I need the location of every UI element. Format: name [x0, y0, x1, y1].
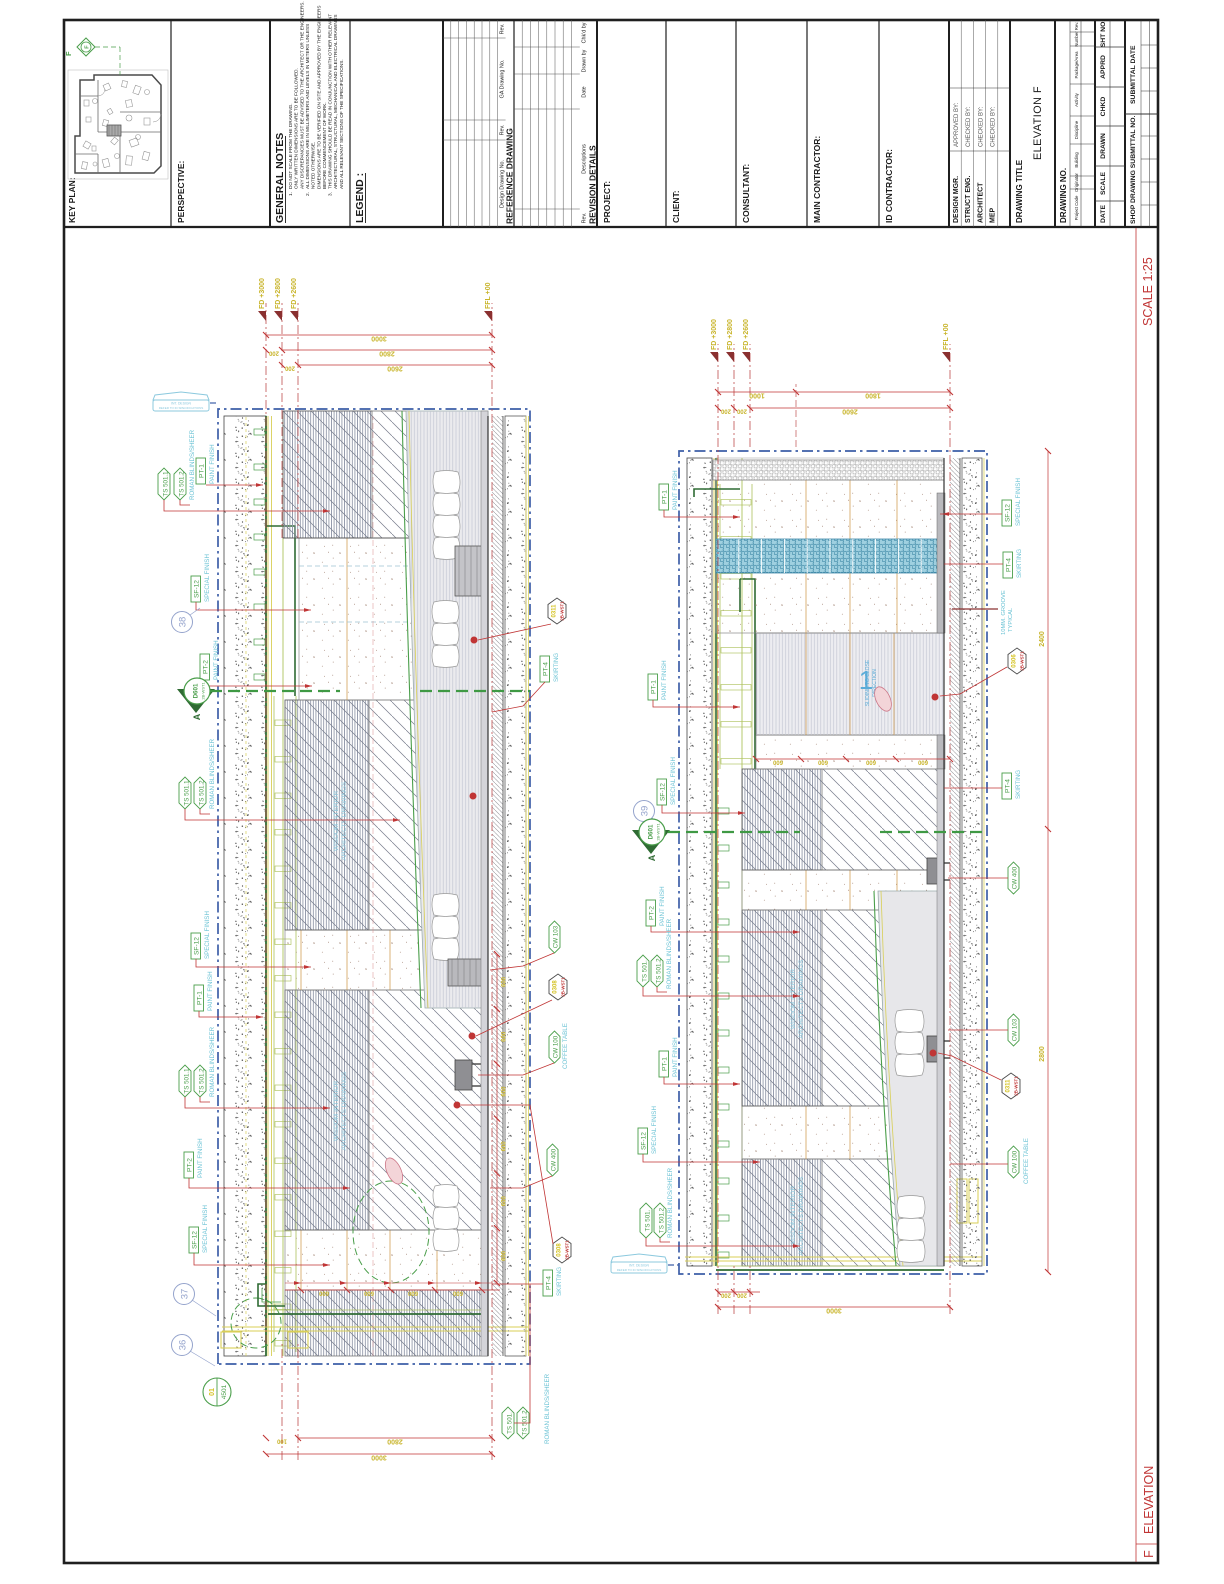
- svg-text:KEY PLAN:: KEY PLAN:: [67, 177, 77, 223]
- svg-text:SPECIAL FINISH: SPECIAL FINISH: [204, 911, 211, 959]
- svg-text:SHOP DRAWING SUBMITTAL NO.: SHOP DRAWING SUBMITTAL NO.: [1130, 116, 1137, 224]
- svg-text:2B-WST1: 2B-WST1: [560, 601, 565, 621]
- svg-text:0306: 0306: [1012, 654, 1018, 668]
- svg-text:PT-2: PT-2: [649, 906, 656, 920]
- svg-text:36: 36: [177, 1340, 188, 1351]
- svg-text:PT-1: PT-1: [197, 991, 204, 1005]
- svg-text:1800: 1800: [865, 392, 881, 399]
- svg-text:F: F: [64, 51, 73, 56]
- svg-text:PT-1: PT-1: [651, 680, 658, 694]
- svg-text:TS 501.2: TS 501.2: [198, 780, 205, 806]
- svg-text:SKIRTING: SKIRTING: [553, 653, 560, 682]
- svg-text:SF-12: SF-12: [660, 783, 667, 801]
- svg-text:PAINT FINISH: PAINT FINISH: [661, 660, 668, 700]
- svg-text:ROMAN BLINDS/SHEER: ROMAN BLINDS/SHEER: [209, 738, 216, 809]
- svg-text:3000: 3000: [371, 1454, 387, 1461]
- svg-text:600: 600: [502, 976, 508, 987]
- svg-text:SKIRTING: SKIRTING: [1015, 770, 1022, 799]
- svg-text:SUBMITTAL DATE: SUBMITTAL DATE: [1130, 45, 1137, 104]
- svg-text:Package/Area: Package/Area: [1074, 51, 1079, 79]
- svg-text:MAIN CONTRACTOR:: MAIN CONTRACTOR:: [812, 136, 822, 223]
- svg-text:600: 600: [363, 1290, 374, 1296]
- svg-text:1.: 1.: [288, 192, 293, 196]
- svg-text:200: 200: [736, 408, 747, 414]
- svg-text:THIS DRAWING SHOULD BE READ IN: THIS DRAWING SHOULD BE READ IN CONJUNCTI…: [328, 14, 333, 189]
- svg-text:Project Code: Project Code: [1074, 195, 1079, 220]
- svg-text:ALL DIMENSIONS ARE IN MILLIMET: ALL DIMENSIONS ARE IN MILLIMETERS AND LE…: [305, 24, 310, 189]
- svg-text:39: 39: [639, 806, 650, 817]
- svg-text:F: F: [1142, 1550, 1156, 1558]
- svg-text:600: 600: [318, 1290, 329, 1296]
- svg-text:PAINT FINISH: PAINT FINISH: [197, 1138, 204, 1178]
- svg-text:WISDOM INTERIOR: WISDOM INTERIOR: [333, 1081, 340, 1142]
- svg-text:3.: 3.: [328, 192, 333, 196]
- svg-text:D601: D601: [648, 824, 655, 839]
- svg-text:SKIRTING: SKIRTING: [1016, 549, 1023, 578]
- svg-text:1000: 1000: [749, 392, 765, 399]
- svg-text:0311: 0311: [552, 604, 558, 618]
- svg-text:FD +2800: FD +2800: [727, 319, 734, 350]
- svg-text:ARCHITECT: ARCHITECT: [977, 182, 984, 223]
- svg-text:INT. DESIGN: INT. DESIGN: [629, 1264, 650, 1268]
- svg-text:TS 501.: TS 501.: [644, 1209, 651, 1231]
- svg-text:TYPICAL: TYPICAL: [1008, 607, 1014, 632]
- svg-text:2B-WST1: 2B-WST1: [1014, 1076, 1019, 1096]
- svg-text:SF-12: SF-12: [1005, 504, 1012, 522]
- svg-text:PT-4: PT-4: [546, 1276, 553, 1290]
- svg-text:TS 501.: TS 501.: [506, 1412, 513, 1434]
- svg-text:PAINT FINISH: PAINT FINISH: [213, 640, 220, 680]
- svg-text:PERSPECTIVE:: PERSPECTIVE:: [176, 160, 186, 223]
- svg-text:Originator: Originator: [1074, 173, 1079, 192]
- svg-text:SHT NO.: SHT NO.: [1100, 20, 1107, 48]
- svg-text:INT. DESIGN: INT. DESIGN: [171, 402, 192, 406]
- svg-text:Number: Number: [1074, 31, 1079, 47]
- svg-text:4501: 4501: [221, 1384, 228, 1399]
- svg-text:PT-1: PT-1: [662, 490, 669, 504]
- svg-text:WISDOM INTERIOR: WISDOM INTERIOR: [333, 791, 340, 852]
- svg-text:TS 501.2: TS 501.2: [655, 958, 662, 984]
- svg-text:APPROVED BY:: APPROVED BY:: [954, 102, 960, 147]
- svg-text:DESIGN MGR.: DESIGN MGR.: [953, 176, 960, 223]
- svg-text:PROJECT:: PROJECT:: [602, 181, 612, 223]
- svg-text:SLIDING TO CLOSE: SLIDING TO CLOSE: [865, 659, 871, 706]
- svg-text:PAINT FINISH: PAINT FINISH: [672, 470, 679, 510]
- svg-text:CHECKED BY:: CHECKED BY:: [966, 106, 972, 147]
- svg-text:38: 38: [177, 617, 188, 628]
- svg-text:PT-1: PT-1: [662, 1057, 669, 1071]
- svg-text:ID CONTRACTOR:: ID CONTRACTOR:: [884, 149, 894, 223]
- svg-text:DRAWING NO.: DRAWING NO.: [1059, 168, 1068, 223]
- svg-text:DRAWN: DRAWN: [1100, 133, 1107, 159]
- svg-text:NOTED OTHERWISE.: NOTED OTHERWISE.: [311, 142, 316, 189]
- svg-text:PAINT FINISH: PAINT FINISH: [672, 1037, 679, 1077]
- svg-text:600: 600: [502, 1031, 508, 1042]
- svg-text:D601: D601: [193, 683, 200, 698]
- svg-text:TS 501.1: TS 501.1: [162, 471, 169, 497]
- svg-text:GENERAL NOTES: GENERAL NOTES: [274, 133, 286, 223]
- svg-text:PT-4: PT-4: [543, 662, 550, 676]
- svg-text:FD +3000: FD +3000: [711, 319, 718, 350]
- svg-text:PAINT FINISH: PAINT FINISH: [659, 886, 666, 926]
- svg-text:FFL +00: FFL +00: [943, 323, 950, 350]
- svg-text:200: 200: [720, 1292, 731, 1298]
- svg-text:Discipline: Discipline: [1074, 120, 1079, 139]
- svg-text:TS 501.2: TS 501.2: [658, 1207, 665, 1233]
- svg-text:CW 103: CW 103: [552, 925, 559, 948]
- svg-text:REFERENCE DRAWING: REFERENCE DRAWING: [505, 128, 515, 224]
- svg-text:3000: 3000: [371, 335, 387, 342]
- svg-text:WISDOM INTERIOR: WISDOM INTERIOR: [790, 1186, 797, 1247]
- svg-text:ROMAN BLINDS/SHEER: ROMAN BLINDS/SHEER: [189, 429, 196, 500]
- svg-text:600: 600: [502, 1196, 508, 1207]
- svg-text:0308: 0308: [557, 1243, 563, 1257]
- svg-text:SPECIAL FINISH: SPECIAL FINISH: [1015, 478, 1022, 526]
- svg-text:CW 400: CW 400: [550, 1148, 557, 1171]
- svg-text:FD +3000: FD +3000: [259, 278, 266, 309]
- svg-text:PT-4: PT-4: [1006, 558, 1013, 572]
- svg-text:SKIRTING: SKIRTING: [556, 1267, 563, 1296]
- svg-text:ARCHITECTS DRAWINGS: ARCHITECTS DRAWINGS: [341, 1071, 348, 1151]
- svg-text:SF-12: SF-12: [194, 937, 201, 955]
- svg-text:Rev.: Rev.: [500, 24, 506, 35]
- svg-text:600: 600: [407, 1290, 418, 1296]
- svg-text:WISDOM INTERIOR: WISDOM INTERIOR: [790, 969, 797, 1030]
- svg-text:2600: 2600: [387, 365, 403, 372]
- svg-text:200: 200: [720, 408, 731, 414]
- svg-text:Activity: Activity: [1074, 92, 1079, 106]
- svg-text:FD +2600: FD +2600: [743, 319, 750, 350]
- svg-text:SF-12: SF-12: [641, 1132, 648, 1150]
- svg-text:MEP: MEP: [990, 208, 997, 224]
- svg-text:Rev.: Rev.: [1074, 22, 1079, 31]
- svg-text:SPECIAL FINISH: SPECIAL FINISH: [204, 554, 211, 602]
- svg-text:TS 501.2: TS 501.2: [198, 1068, 205, 1094]
- svg-text:100: 100: [276, 1438, 287, 1444]
- svg-text:01: 01: [209, 1388, 216, 1396]
- svg-text:PAINT FINISH: PAINT FINISH: [207, 971, 214, 1011]
- svg-text:37: 37: [179, 1289, 190, 1300]
- svg-text:GA Drawing No.: GA Drawing No.: [500, 60, 506, 99]
- svg-text:TS 501.1: TS 501.1: [183, 1068, 190, 1094]
- svg-text:2800: 2800: [1039, 1046, 1046, 1062]
- svg-text:TS 501.2: TS 501.2: [178, 471, 185, 497]
- svg-text:TS 501.1: TS 501.1: [183, 780, 190, 806]
- svg-text:ARCHITECTS DRAWINGS: ARCHITECTS DRAWINGS: [798, 959, 805, 1039]
- svg-text:A: A: [192, 713, 202, 720]
- svg-text:2400: 2400: [1039, 631, 1046, 647]
- svg-text:0311: 0311: [1006, 1079, 1012, 1093]
- svg-text:CHECKED BY:: CHECKED BY:: [978, 106, 984, 147]
- svg-text:ARCHITECTS DRAWINGS: ARCHITECTS DRAWINGS: [341, 781, 348, 861]
- svg-text:600: 600: [772, 759, 783, 765]
- svg-text:SPECIAL FINISH: SPECIAL FINISH: [651, 1106, 658, 1154]
- svg-text:ONLY WRITTEN DIMENSIONS ARE TO: ONLY WRITTEN DIMENSIONS ARE TO BE FOLLOW…: [294, 68, 299, 189]
- svg-text:TS 501.: TS 501.: [641, 960, 648, 982]
- svg-text:REFER TO ID SPECIFICATIONS: REFER TO ID SPECIFICATIONS: [159, 406, 204, 410]
- svg-text:CHKD: CHKD: [1100, 97, 1107, 117]
- svg-text:2B-WST1: 2B-WST1: [565, 1240, 570, 1260]
- svg-text:600: 600: [917, 759, 928, 765]
- svg-text:ANY DISCREPANCIES MUST BE ADVI: ANY DISCREPANCIES MUST BE ADVISED TO THE…: [299, 1, 304, 189]
- svg-text:2800: 2800: [387, 1438, 403, 1445]
- svg-text:FD +2800: FD +2800: [275, 278, 282, 309]
- svg-text:600: 600: [502, 1086, 508, 1097]
- svg-text:ELEVATION: ELEVATION: [1142, 1466, 1156, 1534]
- svg-text:Date: Date: [582, 86, 588, 97]
- svg-text:FD +2600: FD +2600: [291, 278, 298, 309]
- svg-text:10MM. GROOVE: 10MM. GROOVE: [1001, 590, 1007, 635]
- svg-text:2B-WST1: 2B-WST1: [656, 823, 661, 841]
- svg-text:ROMAN BLINDS/SHEER: ROMAN BLINDS/SHEER: [666, 918, 673, 989]
- svg-text:SCALE 1:25: SCALE 1:25: [1141, 257, 1155, 326]
- svg-text:0308: 0308: [553, 980, 559, 994]
- svg-text:2B-WST1: 2B-WST1: [1020, 651, 1025, 671]
- svg-text:PT-2: PT-2: [203, 660, 210, 674]
- svg-text:CLIENT:: CLIENT:: [671, 190, 681, 223]
- svg-text:SF-12: SF-12: [194, 580, 201, 598]
- svg-text:600: 600: [452, 1290, 463, 1296]
- svg-text:CHECKED BY:: CHECKED BY:: [991, 106, 997, 147]
- svg-text:ROMAN BLINDS/SHEER: ROMAN BLINDS/SHEER: [667, 1167, 674, 1238]
- svg-text:REVISION DETAILS: REVISION DETAILS: [588, 145, 598, 224]
- svg-text:3000: 3000: [826, 1307, 842, 1314]
- svg-text:STRUCT ENG.: STRUCT ENG.: [965, 176, 972, 224]
- svg-text:A: A: [647, 854, 657, 861]
- svg-text:CW 100: CW 100: [1011, 1150, 1018, 1173]
- svg-text:ARCHITECTS DRAWINGS: ARCHITECTS DRAWINGS: [798, 1176, 805, 1256]
- svg-text:SPECIAL FINISH: SPECIAL FINISH: [670, 757, 677, 805]
- svg-text:600: 600: [502, 1141, 508, 1152]
- svg-text:CW 100: CW 100: [552, 1035, 559, 1058]
- svg-text:600: 600: [817, 759, 828, 765]
- svg-text:LEGEND :: LEGEND :: [354, 173, 366, 223]
- svg-text:COFFEE TABLE: COFFEE TABLE: [1023, 1138, 1030, 1184]
- svg-text:ELEVATION F: ELEVATION F: [1032, 86, 1044, 160]
- svg-text:DATE: DATE: [1100, 205, 1107, 223]
- svg-text:Chk'd by: Chk'd by: [582, 22, 588, 43]
- svg-text:SF-12: SF-12: [192, 1231, 199, 1249]
- svg-text:Drawn by: Drawn by: [582, 49, 588, 72]
- svg-text:2B-WST1: 2B-WST1: [201, 682, 206, 700]
- svg-text:BEFORE COMMENCEMENT OF WORK.: BEFORE COMMENCEMENT OF WORK.: [322, 102, 327, 189]
- svg-text:DIMENSIONS ARE TO BE VERIFIED: DIMENSIONS ARE TO BE VERIFIED ON SITE AN…: [316, 5, 321, 189]
- svg-text:CW 400: CW 400: [1011, 866, 1018, 889]
- svg-text:SCALE: SCALE: [1100, 172, 1107, 196]
- svg-text:ROMAN BLINDS/SHEER: ROMAN BLINDS/SHEER: [209, 1026, 216, 1097]
- svg-text:REFER TO ID SPECIFICATIONS: REFER TO ID SPECIFICATIONS: [617, 1268, 662, 1272]
- svg-text:2800: 2800: [379, 350, 395, 357]
- svg-text:APPRD: APPRD: [1100, 55, 1107, 79]
- svg-text:CW 103: CW 103: [1011, 1018, 1018, 1041]
- svg-text:ROMAN BLINDS/SHEER: ROMAN BLINDS/SHEER: [544, 1373, 551, 1444]
- svg-text:CONSULTANT:: CONSULTANT:: [741, 164, 751, 223]
- svg-text:DRAWING TITLE: DRAWING TITLE: [1015, 159, 1024, 223]
- svg-text:PT-4: PT-4: [1005, 779, 1012, 793]
- svg-text:AND ALL RELEVANT SECTIONS OF T: AND ALL RELEVANT SECTIONS OF THE SPECIFI…: [339, 59, 344, 189]
- svg-text:200: 200: [284, 365, 295, 371]
- svg-text:ARCHITECTURAL, STRUCTURAL, MEC: ARCHITECTURAL, STRUCTURAL, MECHANICAL AN…: [333, 14, 338, 189]
- svg-text:COFFEE TABLE: COFFEE TABLE: [562, 1023, 569, 1069]
- svg-text:600: 600: [865, 759, 876, 765]
- svg-text:SPECIAL FINISH: SPECIAL FINISH: [202, 1205, 209, 1253]
- svg-text:PT-2: PT-2: [187, 1158, 194, 1172]
- svg-text:PAINT FINISH: PAINT FINISH: [209, 444, 216, 484]
- svg-text:DO NOT SCALE FROM THE DRAWING.: DO NOT SCALE FROM THE DRAWING.: [288, 103, 293, 189]
- svg-text:2.: 2.: [305, 192, 310, 196]
- svg-text:FFL +00: FFL +00: [485, 282, 492, 309]
- svg-text:Building: Building: [1074, 152, 1079, 168]
- svg-text:200: 200: [268, 350, 279, 356]
- svg-text:200: 200: [736, 1292, 747, 1298]
- svg-text:2B-WST1: 2B-WST1: [561, 977, 566, 997]
- svg-text:2600: 2600: [842, 408, 858, 415]
- svg-text:600: 600: [502, 1250, 508, 1261]
- svg-text:PT-1: PT-1: [199, 464, 206, 478]
